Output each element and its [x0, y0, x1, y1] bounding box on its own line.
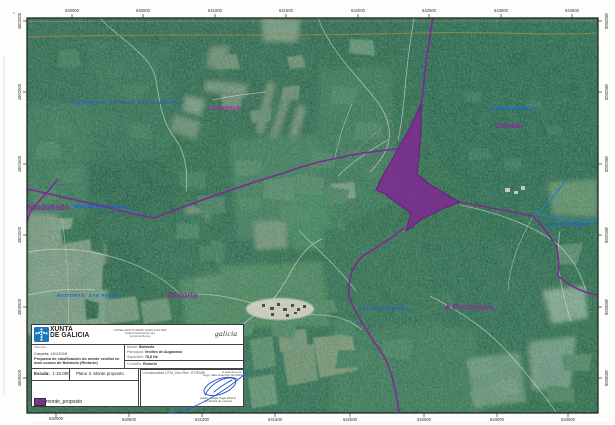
svg-text:4801000: 4801000: [604, 227, 609, 244]
svg-text:4800500: 4800500: [17, 298, 22, 315]
svg-text:643000: 643000: [494, 8, 509, 13]
svg-text:640000: 640000: [65, 8, 80, 13]
svg-text:642000: 642000: [351, 8, 366, 13]
svg-text:4802500: 4802500: [604, 13, 609, 30]
svg-text:Riotorto: Riotorto: [167, 291, 198, 300]
svg-text:642500: 642500: [422, 8, 437, 13]
svg-text:641000: 641000: [208, 8, 223, 13]
svg-text:642500: 642500: [417, 417, 432, 422]
svg-text:4800000: 4800000: [17, 369, 22, 386]
svg-text:4800000: 4800000: [604, 370, 609, 387]
svg-text:640500: 640500: [122, 417, 137, 422]
svg-text:643500: 643500: [565, 8, 580, 13]
svg-text:4800500: 4800500: [604, 299, 609, 316]
svg-text:Trabada: Trabada: [494, 121, 524, 130]
svg-text:A Pontenova: A Pontenova: [445, 303, 494, 312]
svg-text:4801500: 4801500: [604, 156, 609, 173]
svg-text:REGO DE VILARMIDE: REGO DE VILARMIDE: [363, 306, 409, 311]
svg-text:641500: 641500: [268, 417, 283, 422]
svg-text:4802500: 4802500: [17, 12, 22, 29]
svg-text:4802000: 4802000: [604, 84, 609, 101]
svg-text:4802000: 4802000: [17, 83, 22, 100]
svg-text:643000: 643000: [490, 417, 505, 422]
svg-text:640500: 640500: [136, 8, 151, 13]
svg-text:642000: 642000: [343, 417, 358, 422]
svg-text:REGO DAS CANCELAS: REGO DAS CANCELAS: [489, 106, 536, 111]
svg-text:Mondoñedo: Mondoñedo: [24, 203, 69, 212]
svg-text:640000: 640000: [49, 416, 64, 421]
svg-text:REGO DE FERREIRA: REGO DE FERREIRA: [546, 222, 588, 227]
svg-text:NACEMENTO DO REGO DAS RODRIGAS: NACEMENTO DO REGO DAS RODRIGAS: [71, 100, 182, 105]
svg-text:643500: 643500: [561, 417, 576, 422]
svg-text:4801500: 4801500: [17, 155, 22, 172]
svg-text:641500: 641500: [279, 8, 294, 13]
svg-text:4801000: 4801000: [17, 226, 22, 243]
svg-text:RIOTORTO, SAN PEDRO: RIOTORTO, SAN PEDRO: [57, 293, 120, 298]
svg-text:Lourenzá: Lourenzá: [209, 105, 240, 112]
